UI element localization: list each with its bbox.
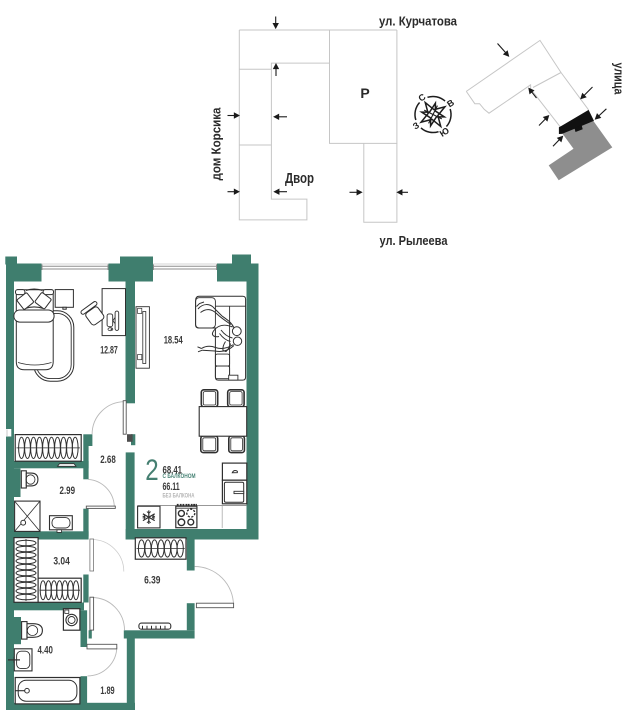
svg-text:ул. Рылеева: ул. Рылеева — [380, 233, 449, 248]
svg-text:66.11: 66.11 — [163, 481, 180, 493]
svg-text:4.40: 4.40 — [38, 644, 53, 656]
svg-text:С БАЛКОНОМ: С БАЛКОНОМ — [163, 473, 196, 480]
svg-text:Р: Р — [360, 85, 369, 101]
svg-text:Ю: Ю — [438, 125, 451, 138]
svg-text:Двор: Двор — [285, 171, 314, 187]
svg-text:В: В — [445, 97, 456, 109]
svg-text:2.68: 2.68 — [100, 454, 116, 466]
svg-text:3.04: 3.04 — [53, 555, 70, 567]
svg-text:дом Корсика: дом Корсика — [209, 107, 224, 181]
svg-text:С: С — [417, 91, 428, 103]
svg-text:18.54: 18.54 — [164, 334, 184, 346]
svg-text:2.99: 2.99 — [60, 485, 76, 497]
svg-text:2: 2 — [145, 454, 158, 487]
svg-text:БЕЗ БАЛКОНА: БЕЗ БАЛКОНА — [163, 492, 195, 499]
svg-text:12.87: 12.87 — [100, 344, 118, 356]
svg-text:улица: улица — [612, 63, 627, 96]
svg-text:ул. Курчатова: ул. Курчатова — [379, 14, 458, 29]
svg-text:1.89: 1.89 — [100, 685, 114, 697]
svg-text:З: З — [411, 120, 421, 132]
svg-text:6.39: 6.39 — [144, 574, 160, 586]
